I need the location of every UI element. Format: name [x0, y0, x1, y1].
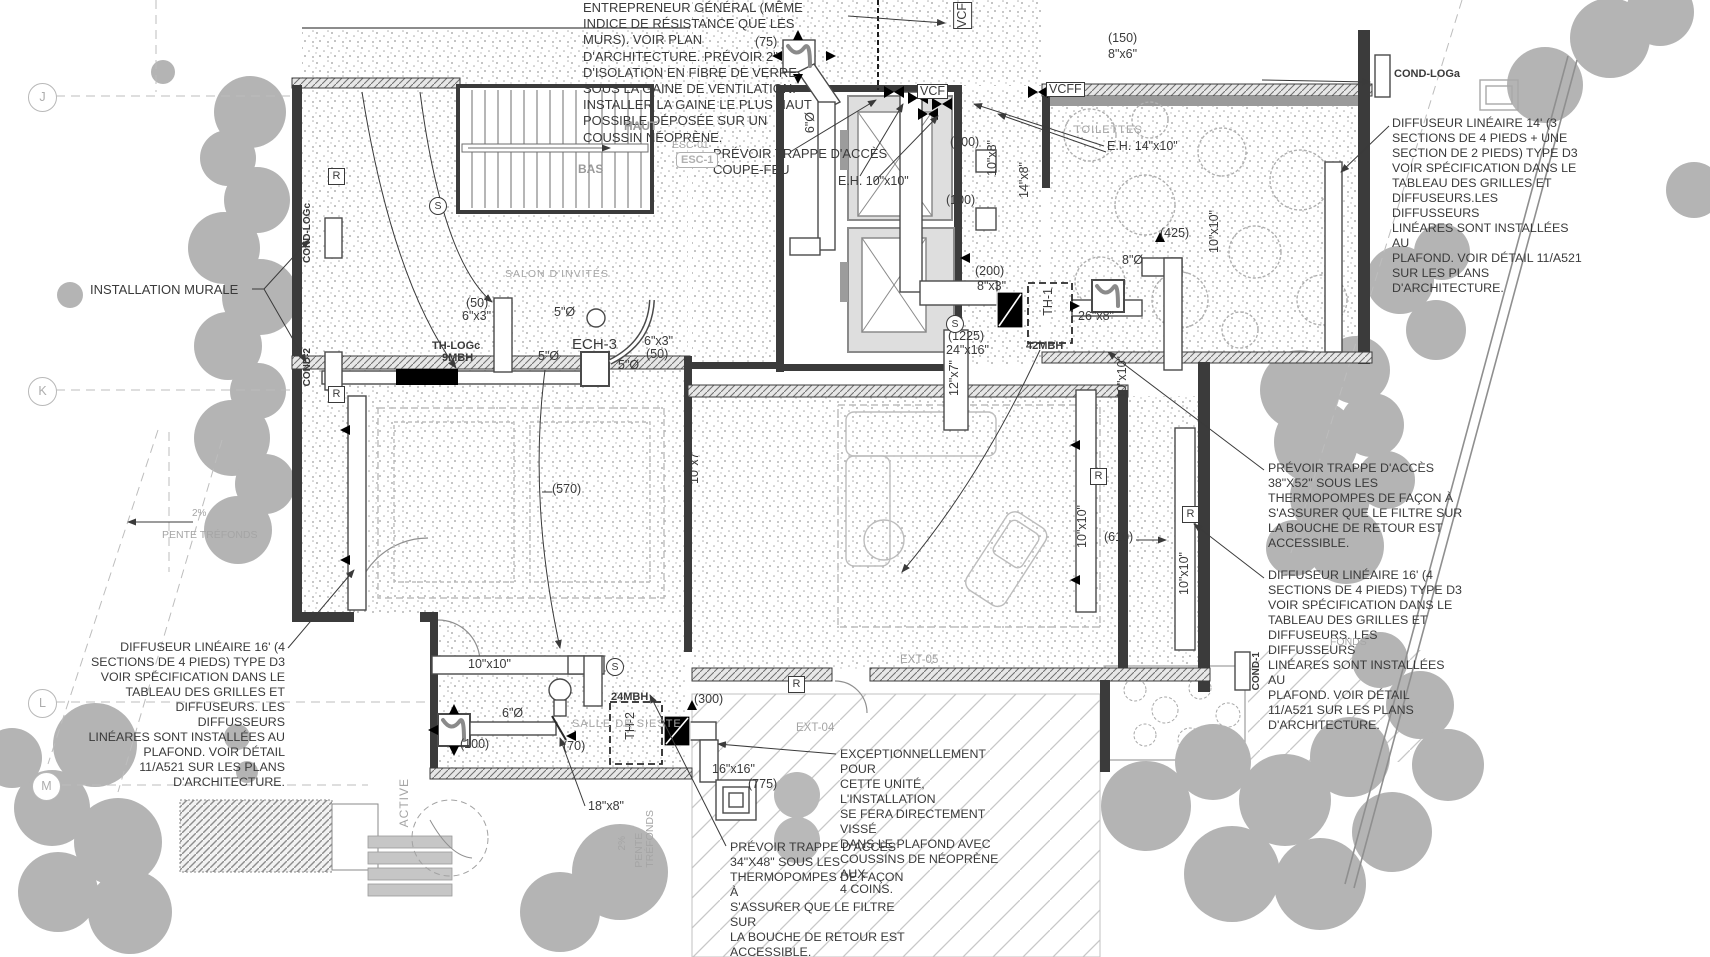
cfm-300: (300) [694, 693, 723, 706]
duct-10x8: 10"x8" [986, 140, 999, 176]
symbol-r-1: R [328, 168, 345, 185]
site-pente-trefonds-v: PENTE TRÉFONDS [634, 810, 656, 868]
grid-bubble-j: J [28, 83, 57, 112]
label-vcf-riser: VCF [953, 2, 972, 29]
duct-14x8: 14"x8" [1018, 162, 1031, 198]
duct-8x3: 8"x3" [977, 280, 1006, 293]
cfm-50-b: (50) [646, 348, 668, 361]
duct-16x16: 16"x16" [712, 763, 755, 776]
note-diffuseur-14: DIFFUSEUR LINÉAIRE 14' (3 SECTIONS DE 4 … [1392, 116, 1582, 296]
room-esc-tag: ESC-1 [676, 152, 718, 168]
site-pct-h: 2% [192, 506, 206, 522]
label-vcff: VCFF [1046, 82, 1085, 97]
note-trappe-38x52: PRÉVOIR TRAPPE D'ACCÈS 38"X52" SOUS LES … [1268, 461, 1463, 551]
label-eh-10x10: E.H. 10"x10" [838, 175, 909, 188]
duct-6x3-a: 6"x3" [462, 310, 491, 323]
duct-5d-a: 5"Ø [554, 306, 575, 319]
room-bas: BAS [578, 161, 603, 177]
tag-cond-2: COND-2 [303, 348, 314, 386]
cfm-100-haut: (100) [946, 194, 975, 207]
tag-th-1: TH-1 [1042, 288, 1055, 316]
cfm-425: (425) [1160, 227, 1189, 240]
room-esc-01: ESC-01 [672, 137, 709, 153]
room-salon-invites: SALON D'INVITÉS [505, 266, 609, 282]
symbol-s-1: S [429, 197, 447, 215]
label-eh-14x10: E.H. 14"x10" [1107, 140, 1178, 153]
duct-10x10-branche: 10"x10" [1116, 356, 1129, 399]
duct-5d-b: 5"Ø [538, 350, 559, 363]
grid-bubble-l: L [28, 689, 57, 718]
duct-26x8: 26"x8" [1078, 310, 1114, 323]
cfm-610: (610) [1104, 531, 1133, 544]
symbol-r-5: R [788, 676, 805, 693]
room-haut: HAUT [624, 118, 657, 134]
note-installation-murale: INSTALLATION MURALE [90, 282, 238, 298]
elevator-shafts [840, 96, 954, 352]
label-vcf: VCF [917, 84, 948, 99]
tag-th-logc-capacity: 9MBH [442, 352, 473, 364]
tag-cond-logc: COND-LOGc [303, 203, 314, 263]
room-ext-05: EXT-05 [900, 652, 938, 668]
room-toilettes: TOILETTES [1074, 122, 1143, 138]
room-ext-04: EXT-04 [796, 720, 834, 736]
cfm-200: (200) [975, 265, 1004, 278]
tag-th-1-capacity: 42MBH [1026, 340, 1063, 352]
floor-plan-sheet: J K L M ENTREPRENEUR GÉNÉRAL (MÊME INDIC… [0, 0, 1710, 957]
duct-24x16: 24"x16" [946, 344, 989, 357]
symbol-s-3: S [606, 658, 624, 676]
cfm-570: (570) [552, 483, 581, 496]
duct-18x8: 18"x8" [588, 800, 624, 813]
symbol-r-4: R [1182, 506, 1199, 523]
grid-bubble-k: K [28, 377, 57, 406]
cfm-100-bas: (100) [460, 738, 489, 751]
duct-6d-riser: 6"Ø [804, 112, 817, 133]
duct-6d-bas: 6"Ø [502, 707, 523, 720]
cfm-75: (75) [755, 36, 777, 49]
tag-cond-loga: COND-LOGa [1394, 68, 1460, 80]
duct-12x7: 12"x7" [948, 360, 961, 396]
tag-th-2-capacity: 24MBH [611, 691, 648, 703]
note-diffuseur-16-droite: DIFFUSEUR LINÉAIRE 16' (4 SECTIONS DE 4 … [1268, 568, 1463, 733]
duct-10x10-mur: 10"x10" [1178, 552, 1191, 595]
note-trappe-34x48: PRÉVOIR TRAPPE D'ACCÈS 34"X48" SOUS LES … [730, 840, 910, 957]
room-salle-sieste: SALLE DE SIESTE [572, 716, 682, 732]
duct-8x6: 8"x6" [1108, 48, 1137, 61]
duct-8d: 8"Ø [1122, 254, 1143, 267]
site-fonds: FONDS [1330, 634, 1367, 650]
site-pente-trefonds-h: PENTE TRÉFONDS [162, 527, 257, 543]
cfm-70: (70) [563, 740, 585, 753]
symbol-r-3: R [1090, 468, 1107, 485]
site-active: ACTIVE [398, 778, 411, 827]
duct-10x10-aile-droite: 10"x10" [1208, 210, 1221, 253]
symbol-s-2: S [946, 315, 964, 333]
cfm-200-haut: (200) [950, 136, 979, 149]
duct-10x10-bas: 10"x10" [468, 658, 511, 671]
duct-10x7: 10"x7" [688, 448, 701, 484]
cfm-775: (775) [748, 778, 777, 791]
grid-bubble-m: M [32, 772, 61, 801]
symbol-r-2: R [328, 386, 345, 403]
cfm-50-a: (50) [466, 297, 488, 310]
tag-cond-1: COND-1 [1252, 652, 1263, 690]
tag-ech-3: ECH-3 [572, 337, 617, 353]
cfm-150: (150) [1108, 32, 1137, 45]
duct-5d-c: 5"Ø [618, 359, 639, 372]
note-diffuseur-16-gauche: DIFFUSEUR LINÉAIRE 16' (4 SECTIONS DE 4 … [85, 640, 285, 790]
site-pct-v: 2% [618, 836, 629, 850]
tag-th-logc: TH-LOGc [432, 340, 480, 352]
duct-10x10-salle: 10"x10" [1076, 505, 1089, 548]
